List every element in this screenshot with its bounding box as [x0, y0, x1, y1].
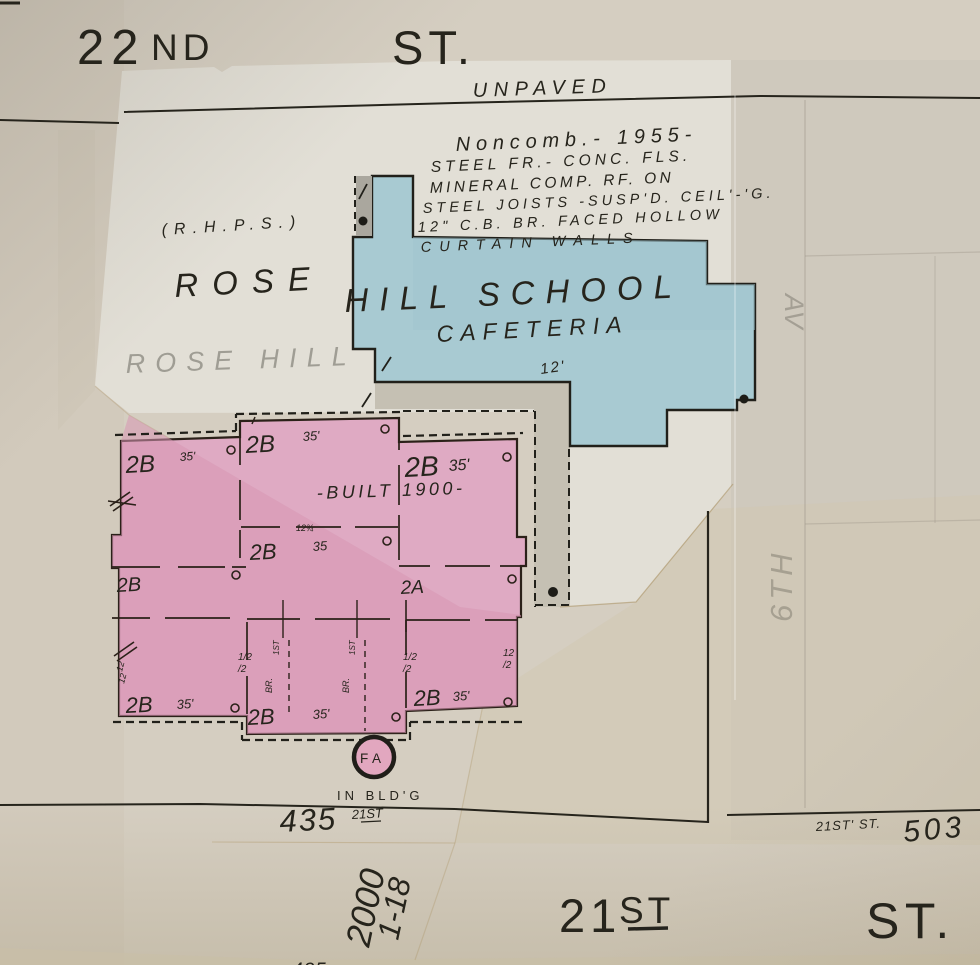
svg-text:2B: 2B	[412, 685, 441, 711]
svg-text:2B: 2B	[244, 430, 276, 459]
svg-text:435: 435	[292, 960, 327, 965]
svg-text:35': 35'	[302, 428, 320, 444]
svg-text:35': 35'	[452, 688, 470, 704]
svg-text:1ST: 1ST	[348, 639, 357, 655]
svg-text:2B: 2B	[248, 539, 277, 565]
svg-text:12¾: 12¾	[296, 523, 314, 533]
svg-text:21: 21	[559, 889, 621, 942]
svg-text:2A: 2A	[399, 577, 424, 599]
svg-text:2B: 2B	[115, 574, 142, 597]
svg-text:FA: FA	[360, 751, 386, 766]
svg-text:ROSE: ROSE	[173, 259, 324, 304]
svg-text:12': 12'	[539, 358, 567, 378]
svg-text:BR.: BR.	[341, 678, 351, 693]
svg-text:/2: /2	[502, 660, 512, 671]
svg-text:35': 35'	[312, 706, 330, 722]
svg-text:35': 35'	[179, 449, 196, 464]
svg-text:/2: /2	[237, 664, 247, 675]
svg-text:503: 503	[902, 811, 967, 849]
svg-text:2B: 2B	[124, 692, 153, 718]
svg-text:ND: ND	[151, 27, 214, 68]
svg-text:IN BLD'G: IN BLD'G	[337, 788, 424, 803]
svg-text:1/2: 1/2	[403, 652, 417, 663]
svg-text:22: 22	[77, 21, 146, 75]
svg-text:ST.: ST.	[866, 893, 955, 949]
svg-text:35': 35'	[448, 457, 471, 475]
svg-text:/2: /2	[402, 664, 412, 675]
svg-text:AV: AV	[779, 292, 809, 332]
svg-text:1/2: 1/2	[238, 652, 252, 663]
svg-text:2B: 2B	[246, 704, 275, 730]
svg-text:35: 35	[312, 538, 328, 554]
svg-text:ST: ST	[619, 890, 674, 931]
svg-text:BR.: BR.	[264, 678, 274, 693]
svg-text:12: 12	[503, 648, 515, 659]
svg-text:35': 35'	[176, 696, 194, 712]
svg-text:6TH: 6TH	[764, 548, 799, 622]
svg-text:ST.: ST.	[392, 21, 475, 74]
svg-text:1ST: 1ST	[272, 639, 281, 655]
svg-text:2B: 2B	[124, 450, 156, 479]
